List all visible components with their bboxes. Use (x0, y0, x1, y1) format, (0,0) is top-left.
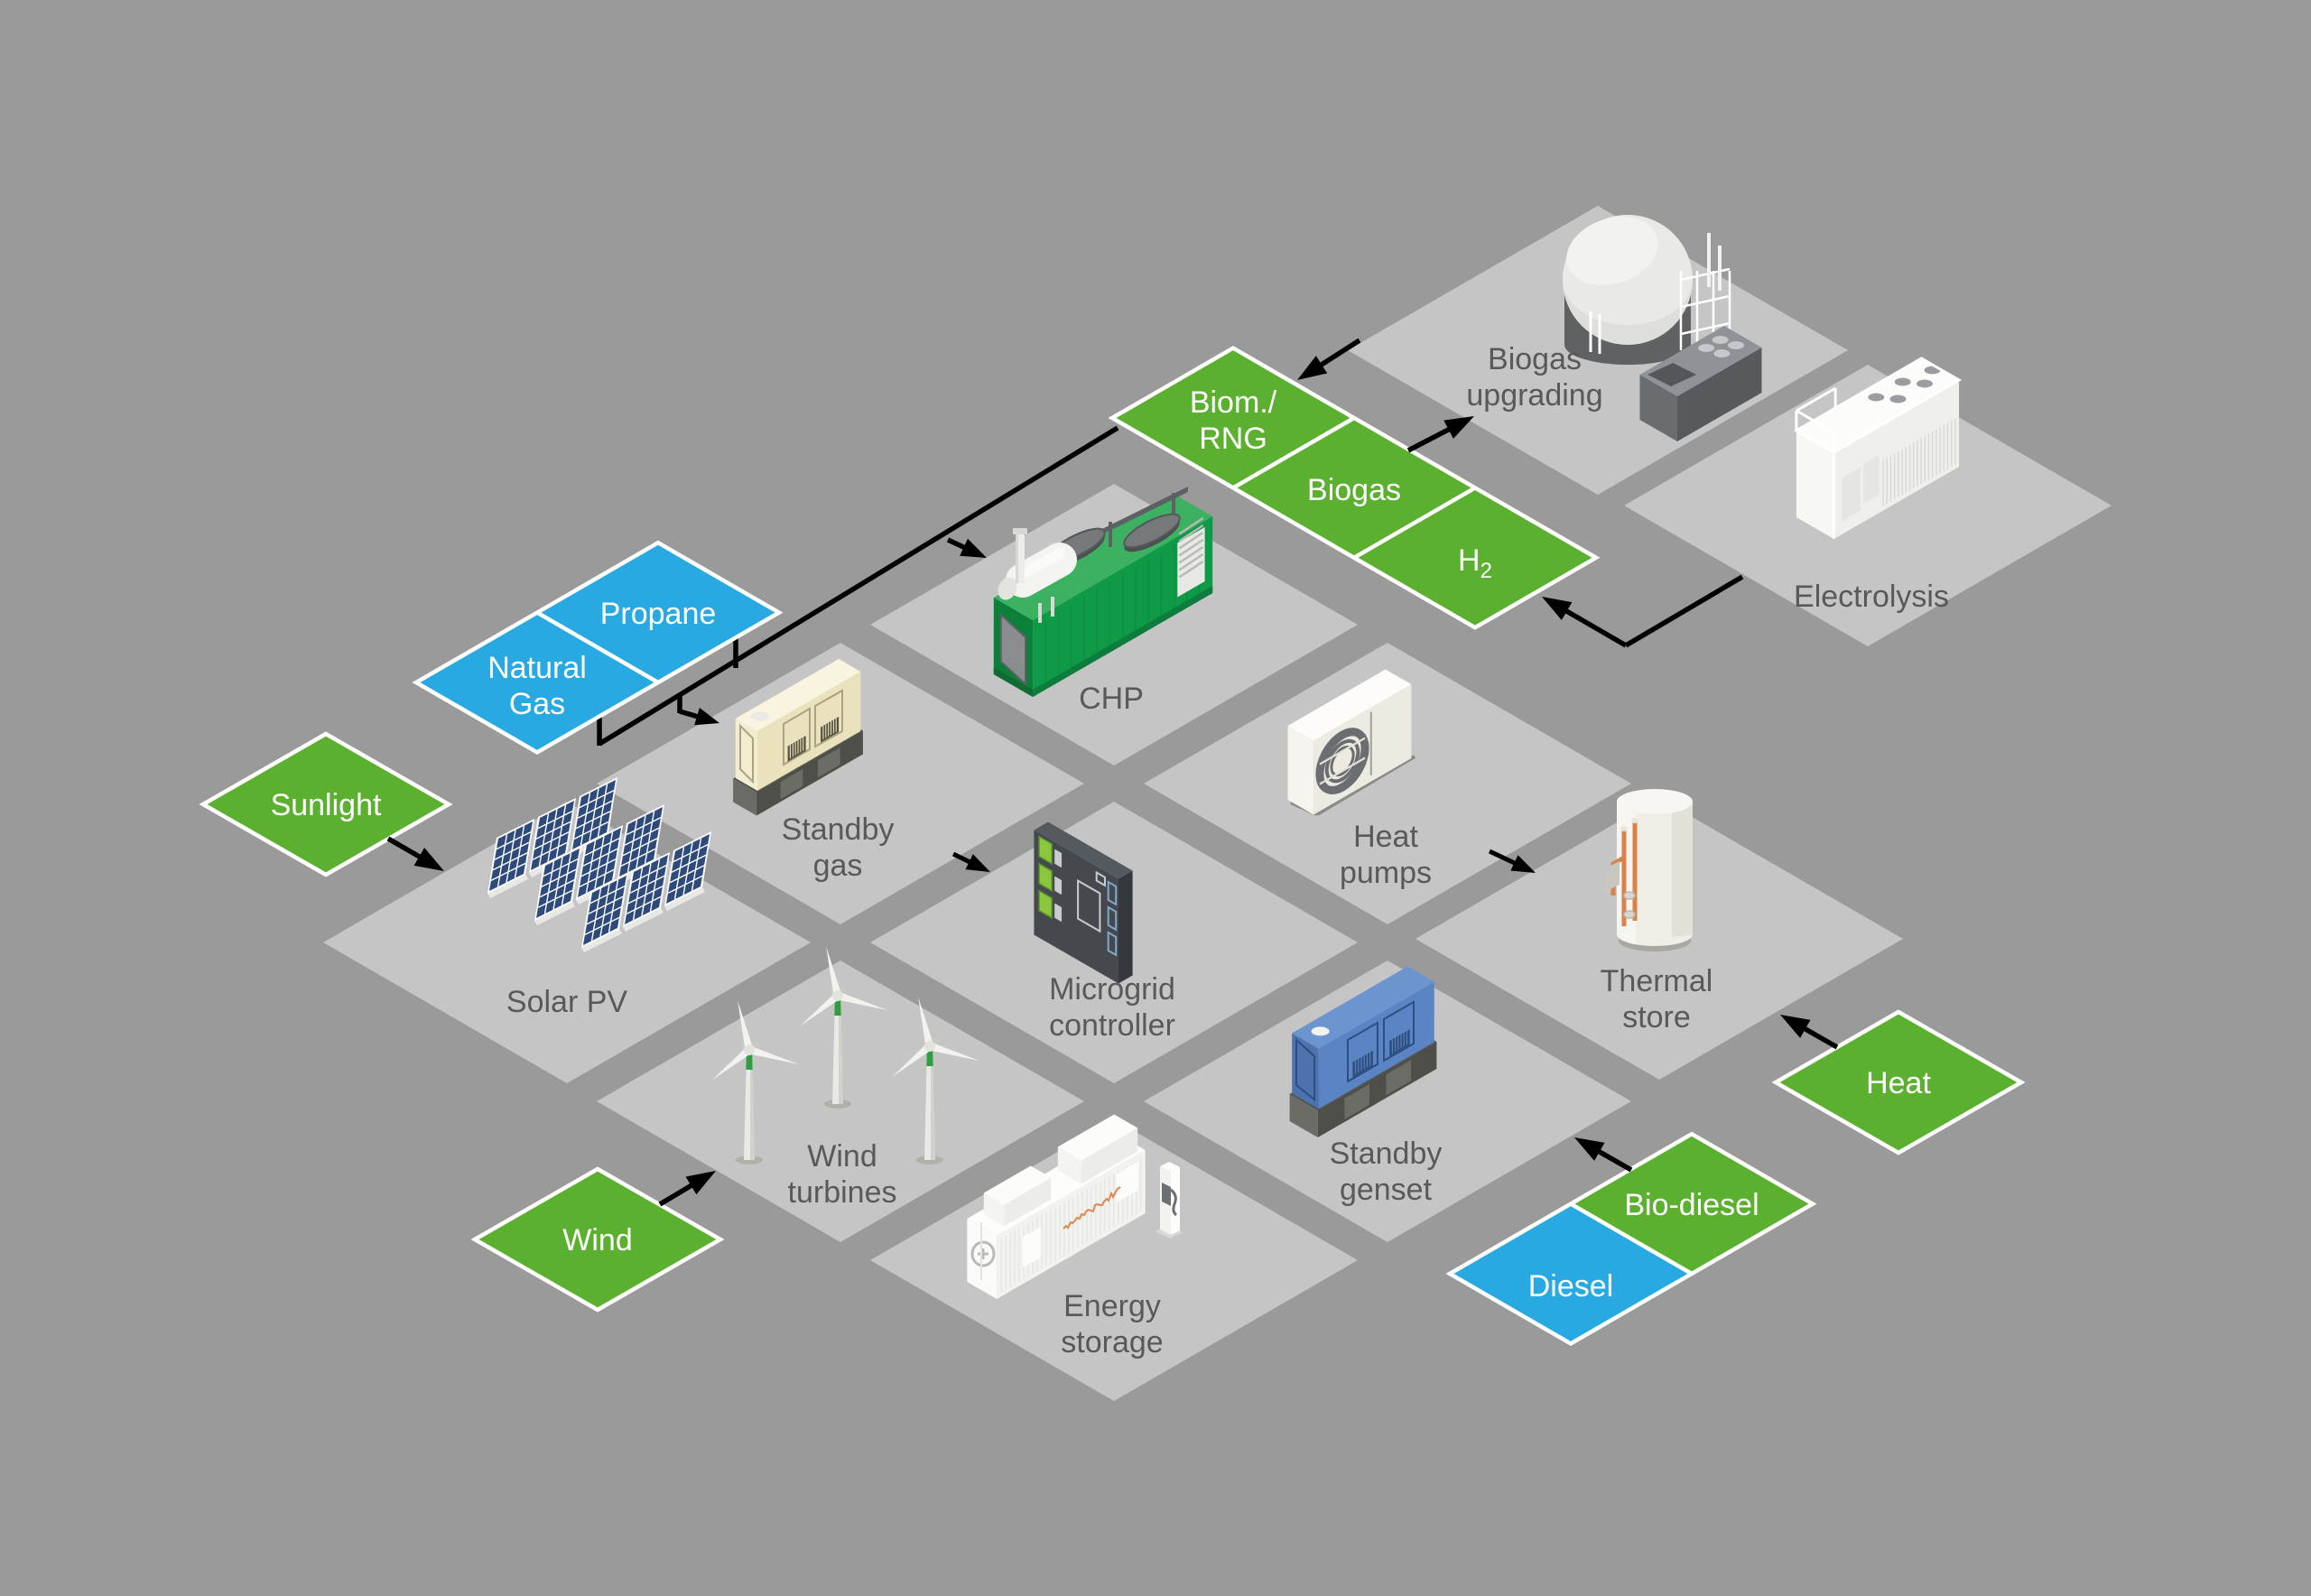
svg-text:Diesel: Diesel (1528, 1269, 1613, 1304)
svg-text:Thermal: Thermal (1601, 964, 1713, 998)
svg-text:Natural: Natural (487, 651, 587, 685)
svg-text:gas: gas (813, 849, 863, 883)
svg-text:Bio-diesel: Bio-diesel (1624, 1188, 1759, 1222)
svg-text:Wind: Wind (807, 1139, 877, 1174)
svg-text:Standby: Standby (782, 812, 895, 847)
svg-text:turbines: turbines (788, 1175, 897, 1210)
svg-text:Sunlight: Sunlight (271, 788, 382, 822)
svg-text:Microgrid: Microgrid (1049, 972, 1175, 1007)
svg-text:Wind: Wind (562, 1223, 632, 1257)
svg-text:Propane: Propane (600, 597, 717, 631)
svg-text:Heat: Heat (1866, 1066, 1931, 1100)
svg-text:pumps: pumps (1340, 856, 1432, 890)
svg-text:Biogas: Biogas (1488, 342, 1582, 376)
svg-text:Biogas: Biogas (1307, 473, 1401, 507)
svg-text:RNG: RNG (1199, 422, 1267, 456)
svg-text:Solar PV: Solar PV (506, 985, 627, 1019)
svg-text:Heat: Heat (1353, 820, 1418, 854)
svg-text:store: store (1622, 1000, 1691, 1035)
svg-text:Energy: Energy (1063, 1289, 1161, 1323)
svg-text:Electrolysis: Electrolysis (1794, 580, 1949, 614)
svg-text:genset: genset (1340, 1173, 1433, 1207)
svg-text:Standby: Standby (1330, 1137, 1443, 1171)
svg-text:Biom./: Biom./ (1190, 385, 1277, 420)
svg-text:controller: controller (1049, 1008, 1175, 1043)
svg-text:CHP: CHP (1079, 682, 1144, 716)
svg-text:upgrading: upgrading (1466, 378, 1602, 413)
svg-text:storage: storage (1061, 1325, 1163, 1359)
svg-text:Gas: Gas (509, 687, 565, 721)
